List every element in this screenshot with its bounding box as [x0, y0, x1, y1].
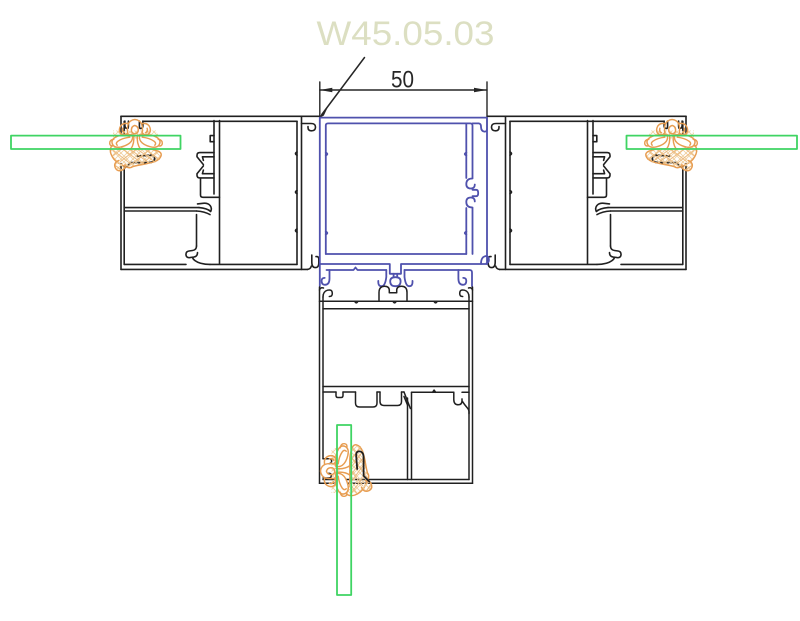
svg-text:W45.05.03: W45.05.03	[317, 15, 495, 53]
